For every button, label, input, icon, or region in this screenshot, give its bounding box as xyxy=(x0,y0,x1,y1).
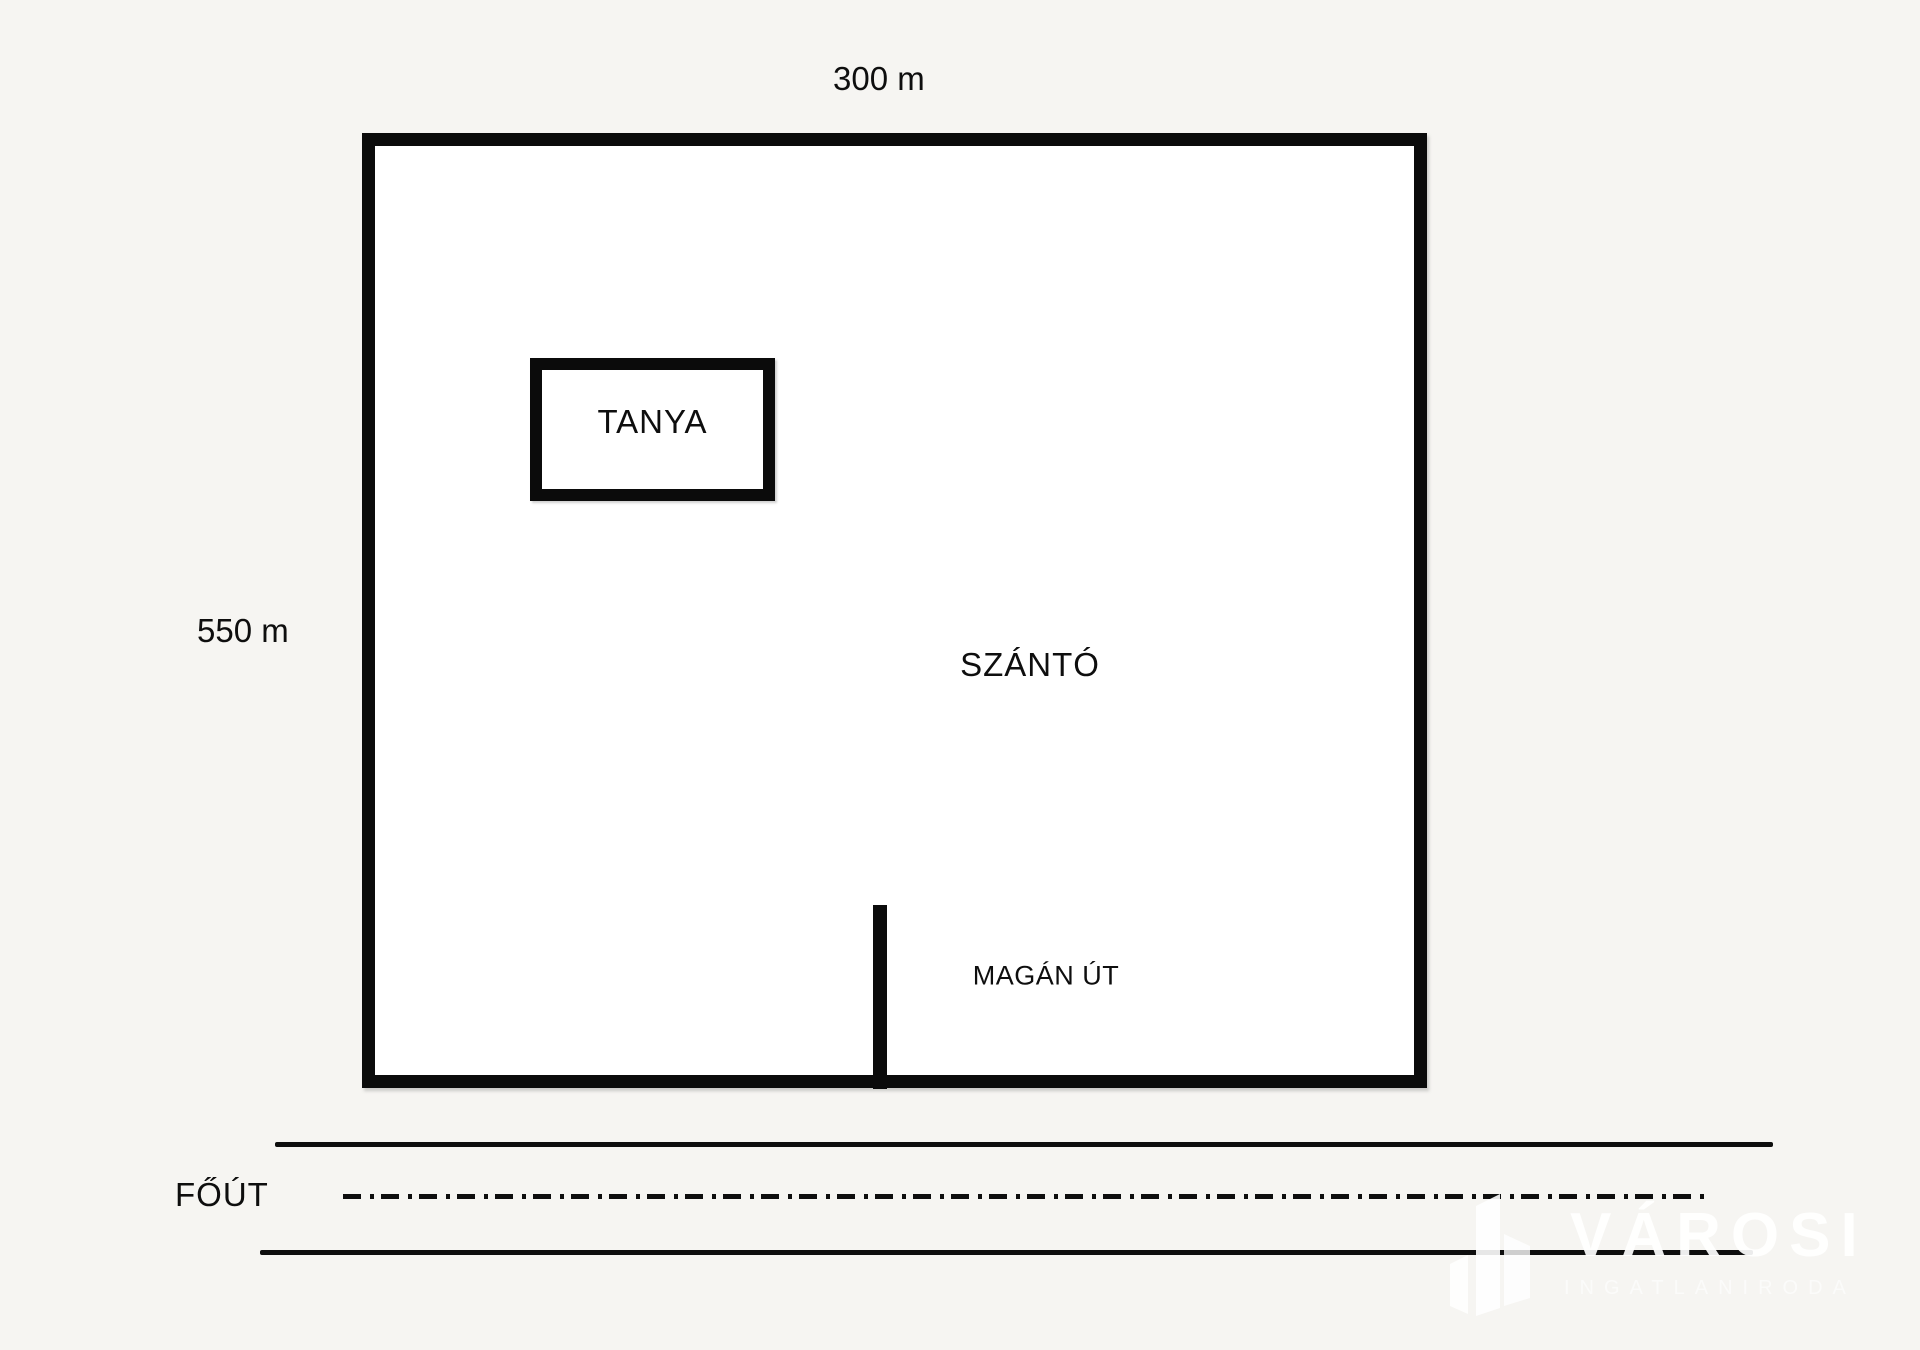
farm-label: TANYA xyxy=(597,403,707,441)
buildings-icon xyxy=(1448,1194,1532,1316)
property-outline xyxy=(362,133,1427,1088)
watermark-tagline: INGATLANIRODA xyxy=(1564,1277,1856,1300)
farm-building-box: TANYA xyxy=(530,358,775,501)
height-dimension-label: 550 m xyxy=(197,612,289,650)
property-sketch-diagram: 300 m 550 m TANYA SZÁNTÓ MAGÁN ÚT FŐÚT V… xyxy=(0,0,1920,1350)
private-road-line xyxy=(873,905,887,1089)
main-road-top-edge xyxy=(275,1142,1773,1147)
watermark: VÁROSI INGATLANIRODA xyxy=(1448,1192,1888,1322)
field-label: SZÁNTÓ xyxy=(960,646,1100,684)
private-road-label: MAGÁN ÚT xyxy=(973,961,1120,992)
main-road-label: FŐÚT xyxy=(175,1176,269,1214)
watermark-brand: VÁROSI xyxy=(1570,1200,1868,1271)
main-road-centerline xyxy=(343,1194,1705,1199)
width-dimension-label: 300 m xyxy=(833,60,925,98)
main-road-bottom-edge xyxy=(260,1250,1753,1255)
